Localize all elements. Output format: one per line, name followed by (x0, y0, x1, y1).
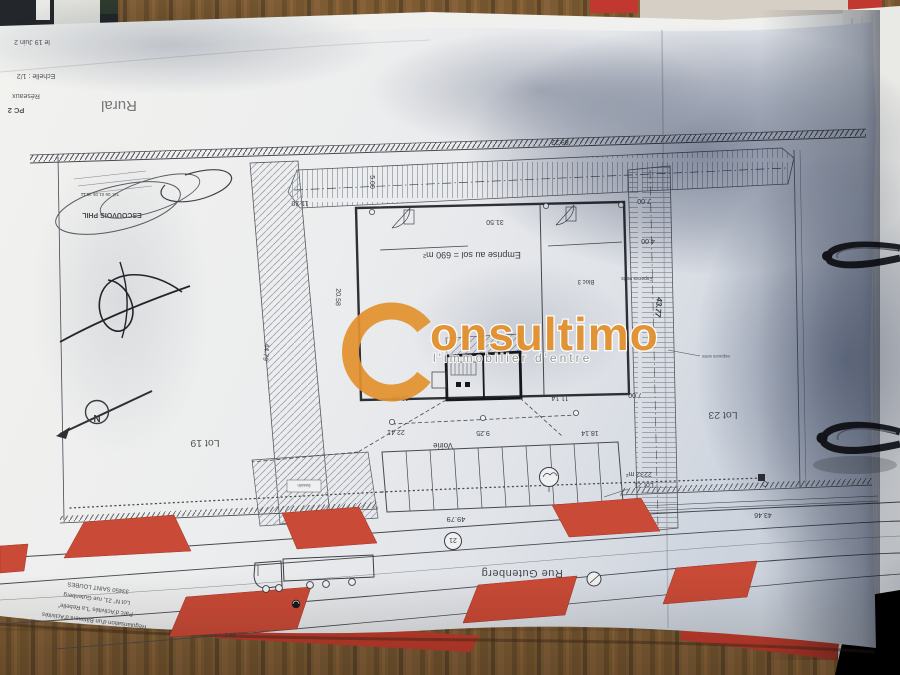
site-plan-photo: N 89.22 11.30 31.50 11.30 22.41 9.25 11.… (0, 0, 900, 675)
watermark-tagline: l'immobilier d'entre (433, 351, 592, 365)
